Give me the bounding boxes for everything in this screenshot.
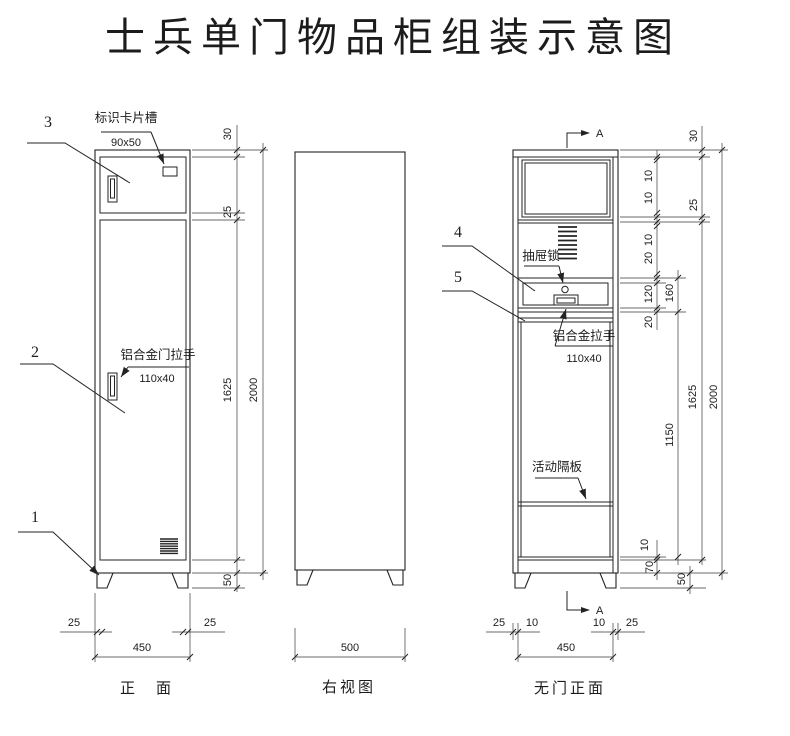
side-view-caption: 右视图 <box>322 679 376 696</box>
nodoor-dim-1625: 1625 <box>687 385 699 409</box>
front-bottom-dims: 25 450 25 <box>60 593 225 662</box>
nodoor-dim-10a: 10 <box>643 170 655 182</box>
nodoor-right-foot <box>600 573 616 588</box>
nodoor-dim-25-left: 25 <box>493 617 505 629</box>
side-bottom-dims: 500 <box>292 628 408 662</box>
door-handle-leader <box>121 367 128 377</box>
drawer-lock-cylinder <box>562 286 568 292</box>
drawing-canvas: 士兵单门物品柜组装示意图 3 2 1 标识卡片槽 90x50 <box>0 0 790 736</box>
shelf-leader <box>578 478 586 499</box>
card-slot-leader <box>151 132 164 164</box>
front-right-foot <box>172 573 188 588</box>
front-dim-450: 450 <box>133 642 151 654</box>
nodoor-section-divider-top <box>518 220 613 223</box>
part-3-leader <box>27 143 130 183</box>
front-door-handle <box>108 373 117 400</box>
nodoor-dim-160: 160 <box>664 284 676 302</box>
front-view-caption: 正 面 <box>120 680 174 697</box>
front-card-slot <box>163 167 177 176</box>
nodoor-dim-20a: 20 <box>643 252 655 264</box>
side-dim-500: 500 <box>341 642 359 654</box>
section-a-bottom-label: A <box>596 605 604 617</box>
nodoor-dim-2000: 2000 <box>708 385 720 409</box>
assembly-drawing-sheet: 士兵单门物品柜组装示意图 3 2 1 标识卡片槽 90x50 <box>0 0 790 736</box>
nodoor-dim-10c: 10 <box>643 234 655 246</box>
nodoor-view: A A 4 5 抽屉锁 铝合金拉手 110x40 活动隔板 <box>442 126 728 697</box>
part-5-label: 5 <box>454 269 462 286</box>
side-cabinet-outline <box>295 152 405 570</box>
nodoor-dim-50: 50 <box>676 573 688 585</box>
nodoor-dim-10-right: 10 <box>593 617 605 629</box>
part-3-label: 3 <box>44 114 52 131</box>
drawer-handle-inner <box>557 298 575 303</box>
nodoor-dim-70: 70 <box>644 561 656 573</box>
nodoor-dim-10d: 10 <box>639 539 651 551</box>
front-dim-chain: 30 25 1625 2000 50 <box>192 125 268 592</box>
nodoor-inner-walls <box>513 157 618 573</box>
side-left-foot <box>297 570 313 585</box>
nodoor-left-foot <box>515 573 531 588</box>
part-4-label: 4 <box>454 224 462 241</box>
nodoor-top-compartment-inner <box>525 163 607 214</box>
front-top-door <box>100 157 186 213</box>
nodoor-dim-30: 30 <box>688 130 700 142</box>
front-left-foot <box>97 573 113 588</box>
door-handle-size: 110x40 <box>139 373 174 385</box>
front-top-door-lock <box>108 176 117 202</box>
nodoor-dim-450: 450 <box>557 642 575 654</box>
section-marker-bottom: A <box>567 591 604 617</box>
nodoor-top-compartment <box>522 160 610 217</box>
nodoor-dim-10-left: 10 <box>526 617 538 629</box>
nodoor-vent-grille <box>558 227 577 259</box>
front-dim-25: 25 <box>222 206 234 218</box>
card-slot-size: 90x50 <box>111 137 141 149</box>
front-view: 3 2 1 标识卡片槽 90x50 铝合金门拉手 110x40 30 25 16… <box>18 111 268 697</box>
drawer-lock-label: 抽屉锁 <box>522 248 560 263</box>
front-dim-25-left: 25 <box>68 617 80 629</box>
drawer-handle-size: 110x40 <box>566 353 601 365</box>
front-dim-1625: 1625 <box>222 378 234 402</box>
shelf-label: 活动隔板 <box>532 460 583 474</box>
nodoor-bottom-dims: 25 10 10 25 450 <box>486 617 645 662</box>
side-view: 500 右视图 <box>292 152 408 696</box>
section-a-top-label: A <box>596 128 604 140</box>
section-marker-top: A <box>567 128 604 148</box>
front-dim-2000: 2000 <box>248 378 260 402</box>
nodoor-dim-25: 25 <box>688 199 700 211</box>
nodoor-dim-10b: 10 <box>643 192 655 204</box>
side-right-foot <box>387 570 403 585</box>
part-2-leader <box>20 364 125 413</box>
front-dim-50: 50 <box>222 574 234 586</box>
nodoor-bottom-panel <box>518 557 613 560</box>
nodoor-dim-120: 120 <box>643 285 655 303</box>
front-dim-30: 30 <box>222 128 234 140</box>
drawing-title: 士兵单门物品柜组装示意图 <box>105 16 681 60</box>
front-vent-grille <box>160 539 178 553</box>
nodoor-shelf <box>518 502 613 506</box>
nodoor-drawer <box>518 278 613 322</box>
door-handle-label: 铝合金门拉手 <box>120 347 195 362</box>
part-1-leader <box>18 532 99 575</box>
drawer-lock-leader <box>559 266 563 283</box>
part-2-label: 2 <box>31 344 39 361</box>
nodoor-view-caption: 无门正面 <box>534 680 606 697</box>
part-1-label: 1 <box>31 509 39 526</box>
card-slot-label: 标识卡片槽 <box>95 111 158 125</box>
nodoor-dim-25-right: 25 <box>626 617 638 629</box>
drawer-handle-label: 铝合金拉手 <box>553 328 616 343</box>
nodoor-dim-20b: 20 <box>643 316 655 328</box>
nodoor-dim-1150: 1150 <box>664 423 676 447</box>
front-main-door <box>100 220 186 560</box>
nodoor-dim-chain: 30 10 10 25 10 20 120 160 20 1150 1625 2… <box>620 126 728 594</box>
front-dim-25-right: 25 <box>204 617 216 629</box>
